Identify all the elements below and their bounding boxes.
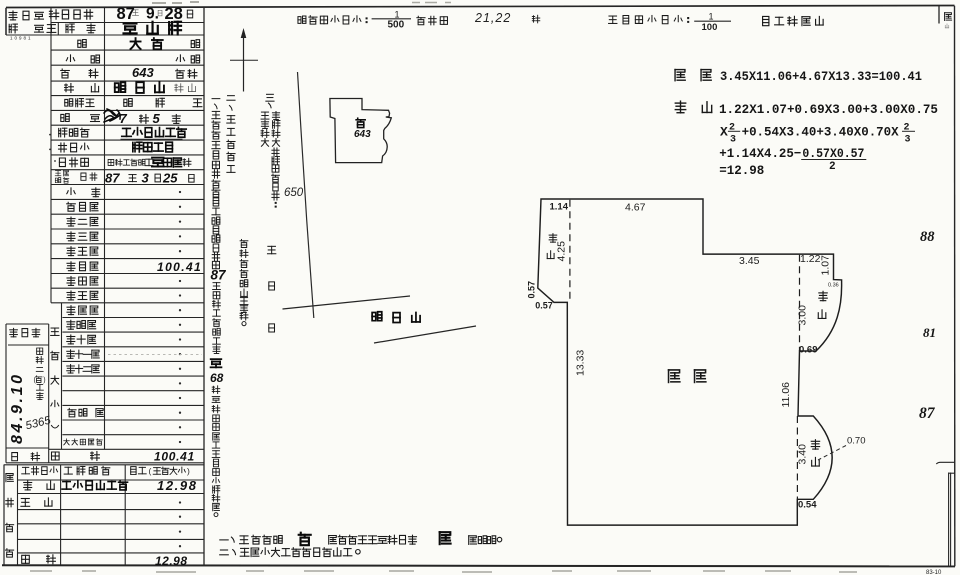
svg-text:0.70: 0.70 bbox=[847, 436, 866, 447]
svg-text:3: 3 bbox=[730, 135, 736, 146]
svg-text:3.45: 3.45 bbox=[739, 255, 760, 267]
svg-text:2: 2 bbox=[904, 123, 910, 134]
svg-text:0.57: 0.57 bbox=[535, 301, 553, 311]
svg-text:10981: 10981 bbox=[10, 36, 33, 41]
svg-text:3: 3 bbox=[905, 135, 911, 146]
svg-text:88: 88 bbox=[920, 229, 935, 245]
svg-text:(: ( bbox=[149, 466, 152, 476]
svg-text:643: 643 bbox=[132, 65, 154, 80]
svg-text:12.98: 12.98 bbox=[155, 554, 188, 568]
svg-text:X: X bbox=[720, 125, 728, 140]
svg-text:21,22: 21,22 bbox=[474, 11, 511, 25]
svg-text:1.07: 1.07 bbox=[820, 255, 832, 276]
svg-text:13.33: 13.33 bbox=[575, 350, 587, 376]
svg-text:28: 28 bbox=[165, 5, 183, 23]
svg-text:68: 68 bbox=[210, 371, 224, 385]
svg-text:0.57X0.57: 0.57X0.57 bbox=[802, 146, 864, 161]
svg-text:5: 5 bbox=[153, 111, 161, 126]
svg-text:100: 100 bbox=[702, 22, 718, 33]
svg-text:87: 87 bbox=[919, 405, 936, 422]
svg-text:1.22X1.07+0.69X3.00+3.00X0.75: 1.22X1.07+0.69X3.00+3.00X0.75 bbox=[719, 102, 938, 117]
svg-text:81: 81 bbox=[923, 325, 936, 340]
svg-text:): ) bbox=[187, 466, 190, 476]
svg-text:0.54: 0.54 bbox=[798, 500, 817, 511]
svg-text:2: 2 bbox=[729, 123, 735, 134]
svg-text:1: 1 bbox=[709, 11, 714, 21]
svg-text:87: 87 bbox=[105, 171, 120, 186]
svg-text:87: 87 bbox=[211, 268, 228, 283]
svg-text:84.9.10: 84.9.10 bbox=[9, 372, 26, 444]
svg-text:1.14: 1.14 bbox=[550, 202, 569, 213]
svg-text:100.41: 100.41 bbox=[154, 450, 195, 464]
svg-text:643: 643 bbox=[354, 129, 371, 140]
svg-text:83-10: 83-10 bbox=[926, 570, 942, 575]
svg-text:(: ( bbox=[34, 377, 37, 384]
svg-text:11.06: 11.06 bbox=[780, 382, 792, 408]
svg-text:500: 500 bbox=[388, 19, 405, 30]
svg-text:3.40: 3.40 bbox=[797, 444, 809, 465]
svg-text:3.00: 3.00 bbox=[797, 305, 809, 326]
svg-text:3: 3 bbox=[142, 171, 150, 186]
svg-text:3.45X11.06+4.67X13.33=100.41: 3.45X11.06+4.67X13.33=100.41 bbox=[720, 70, 922, 84]
svg-text:1: 1 bbox=[395, 10, 400, 20]
svg-text:0.57: 0.57 bbox=[527, 281, 537, 299]
svg-text:0.36: 0.36 bbox=[828, 283, 839, 289]
svg-text:=12.98: =12.98 bbox=[719, 163, 764, 178]
svg-text:4.25: 4.25 bbox=[556, 241, 568, 262]
svg-text:+0.54X3.40+3.40X0.70X: +0.54X3.40+3.40X0.70X bbox=[742, 125, 899, 140]
svg-text:7: 7 bbox=[120, 111, 128, 126]
svg-text:): ) bbox=[43, 377, 45, 384]
svg-text:9.: 9. bbox=[146, 6, 159, 23]
svg-text:+1.14X4.25−: +1.14X4.25− bbox=[719, 146, 801, 161]
svg-text:0.69: 0.69 bbox=[799, 345, 818, 356]
svg-text:2: 2 bbox=[829, 161, 836, 173]
svg-text:1.22: 1.22 bbox=[800, 253, 821, 265]
svg-text:650: 650 bbox=[284, 187, 304, 199]
svg-text:87: 87 bbox=[117, 5, 135, 23]
svg-text:100.41: 100.41 bbox=[157, 260, 202, 274]
svg-text:4.67: 4.67 bbox=[625, 202, 646, 214]
svg-text:12.98: 12.98 bbox=[157, 478, 198, 493]
svg-text:25: 25 bbox=[162, 171, 178, 186]
